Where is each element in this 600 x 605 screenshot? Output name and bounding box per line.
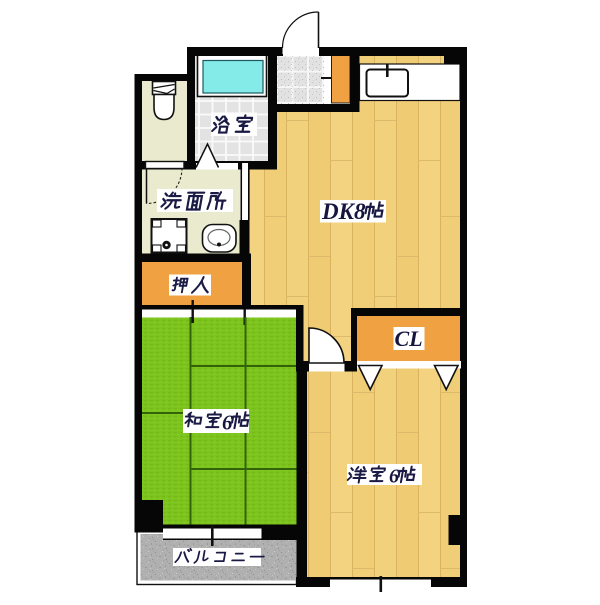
- svg-text:CL: CL: [395, 326, 423, 351]
- svg-text:DK8: DK8: [321, 199, 366, 224]
- svg-text:6: 6: [389, 466, 399, 488]
